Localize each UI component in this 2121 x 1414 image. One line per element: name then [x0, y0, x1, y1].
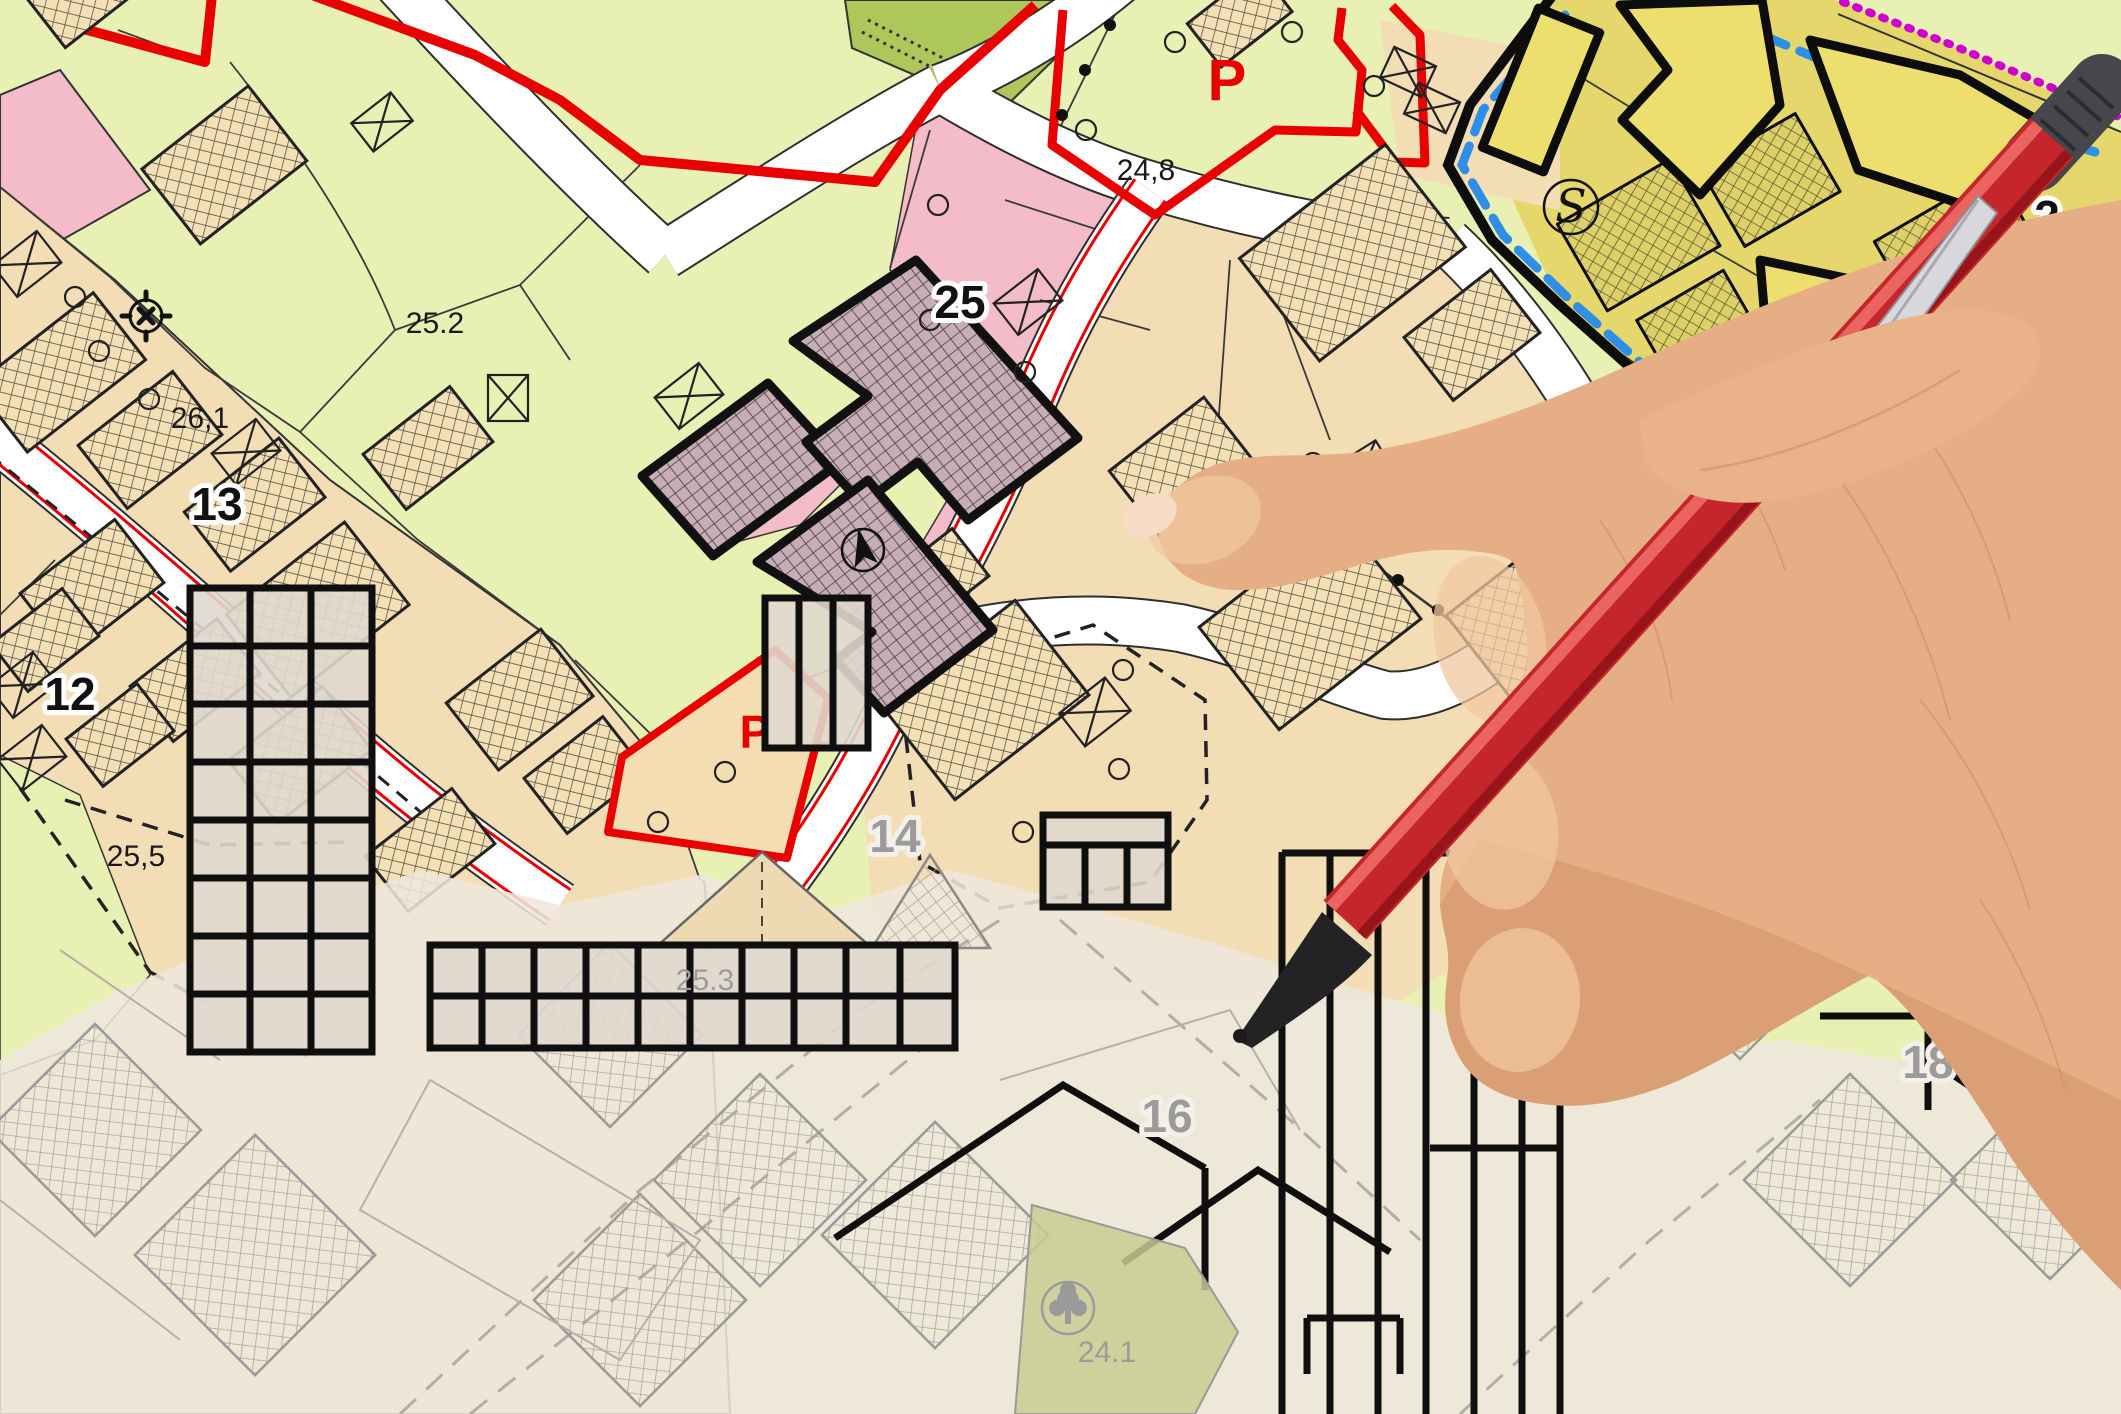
label-zone-25-2: 25.2 — [406, 307, 464, 340]
label-zone-26-1: 26,1 — [171, 402, 229, 435]
label-elev-24-8: 24,8 — [1117, 154, 1175, 187]
zoning-map-screenshot: 25.2 26,1 13 12 25,5 25 P 24,8 P 25.1 15… — [0, 0, 2121, 1414]
pen-tip-point — [1233, 1029, 1247, 1043]
label-parcel-12: 12 — [44, 668, 95, 720]
label-sketch-25-3: 25.3 — [676, 964, 734, 997]
label-school-s: S — [1555, 179, 1587, 233]
label-sketch-24-1: 24.1 — [1078, 1336, 1136, 1369]
label-parcel-13: 13 — [191, 478, 242, 530]
label-sketch-14: 14 — [869, 810, 921, 862]
block-small-14 — [1043, 815, 1168, 907]
block-tall-left — [190, 588, 372, 1052]
block-bars-small — [765, 598, 868, 748]
zoning-map: 25.2 26,1 13 12 25,5 25 P 24,8 P 25.1 15… — [0, 0, 2121, 1414]
label-zone-25-5: 25,5 — [107, 840, 165, 873]
label-sketch-16: 16 — [1141, 1090, 1192, 1142]
label-parcel-25: 25 — [934, 276, 985, 328]
label-parking-top: P — [1208, 48, 1247, 113]
